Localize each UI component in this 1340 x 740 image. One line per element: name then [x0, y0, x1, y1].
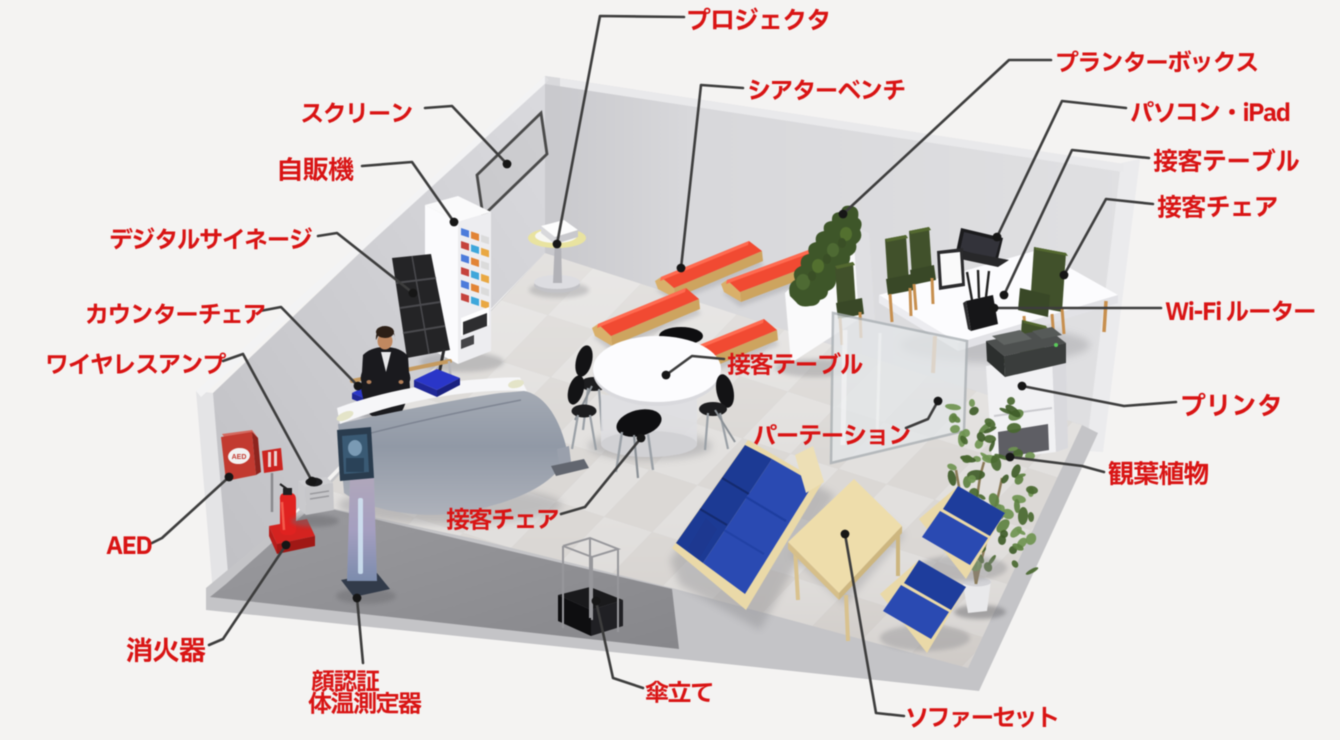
svg-text:AED: AED	[232, 454, 247, 461]
